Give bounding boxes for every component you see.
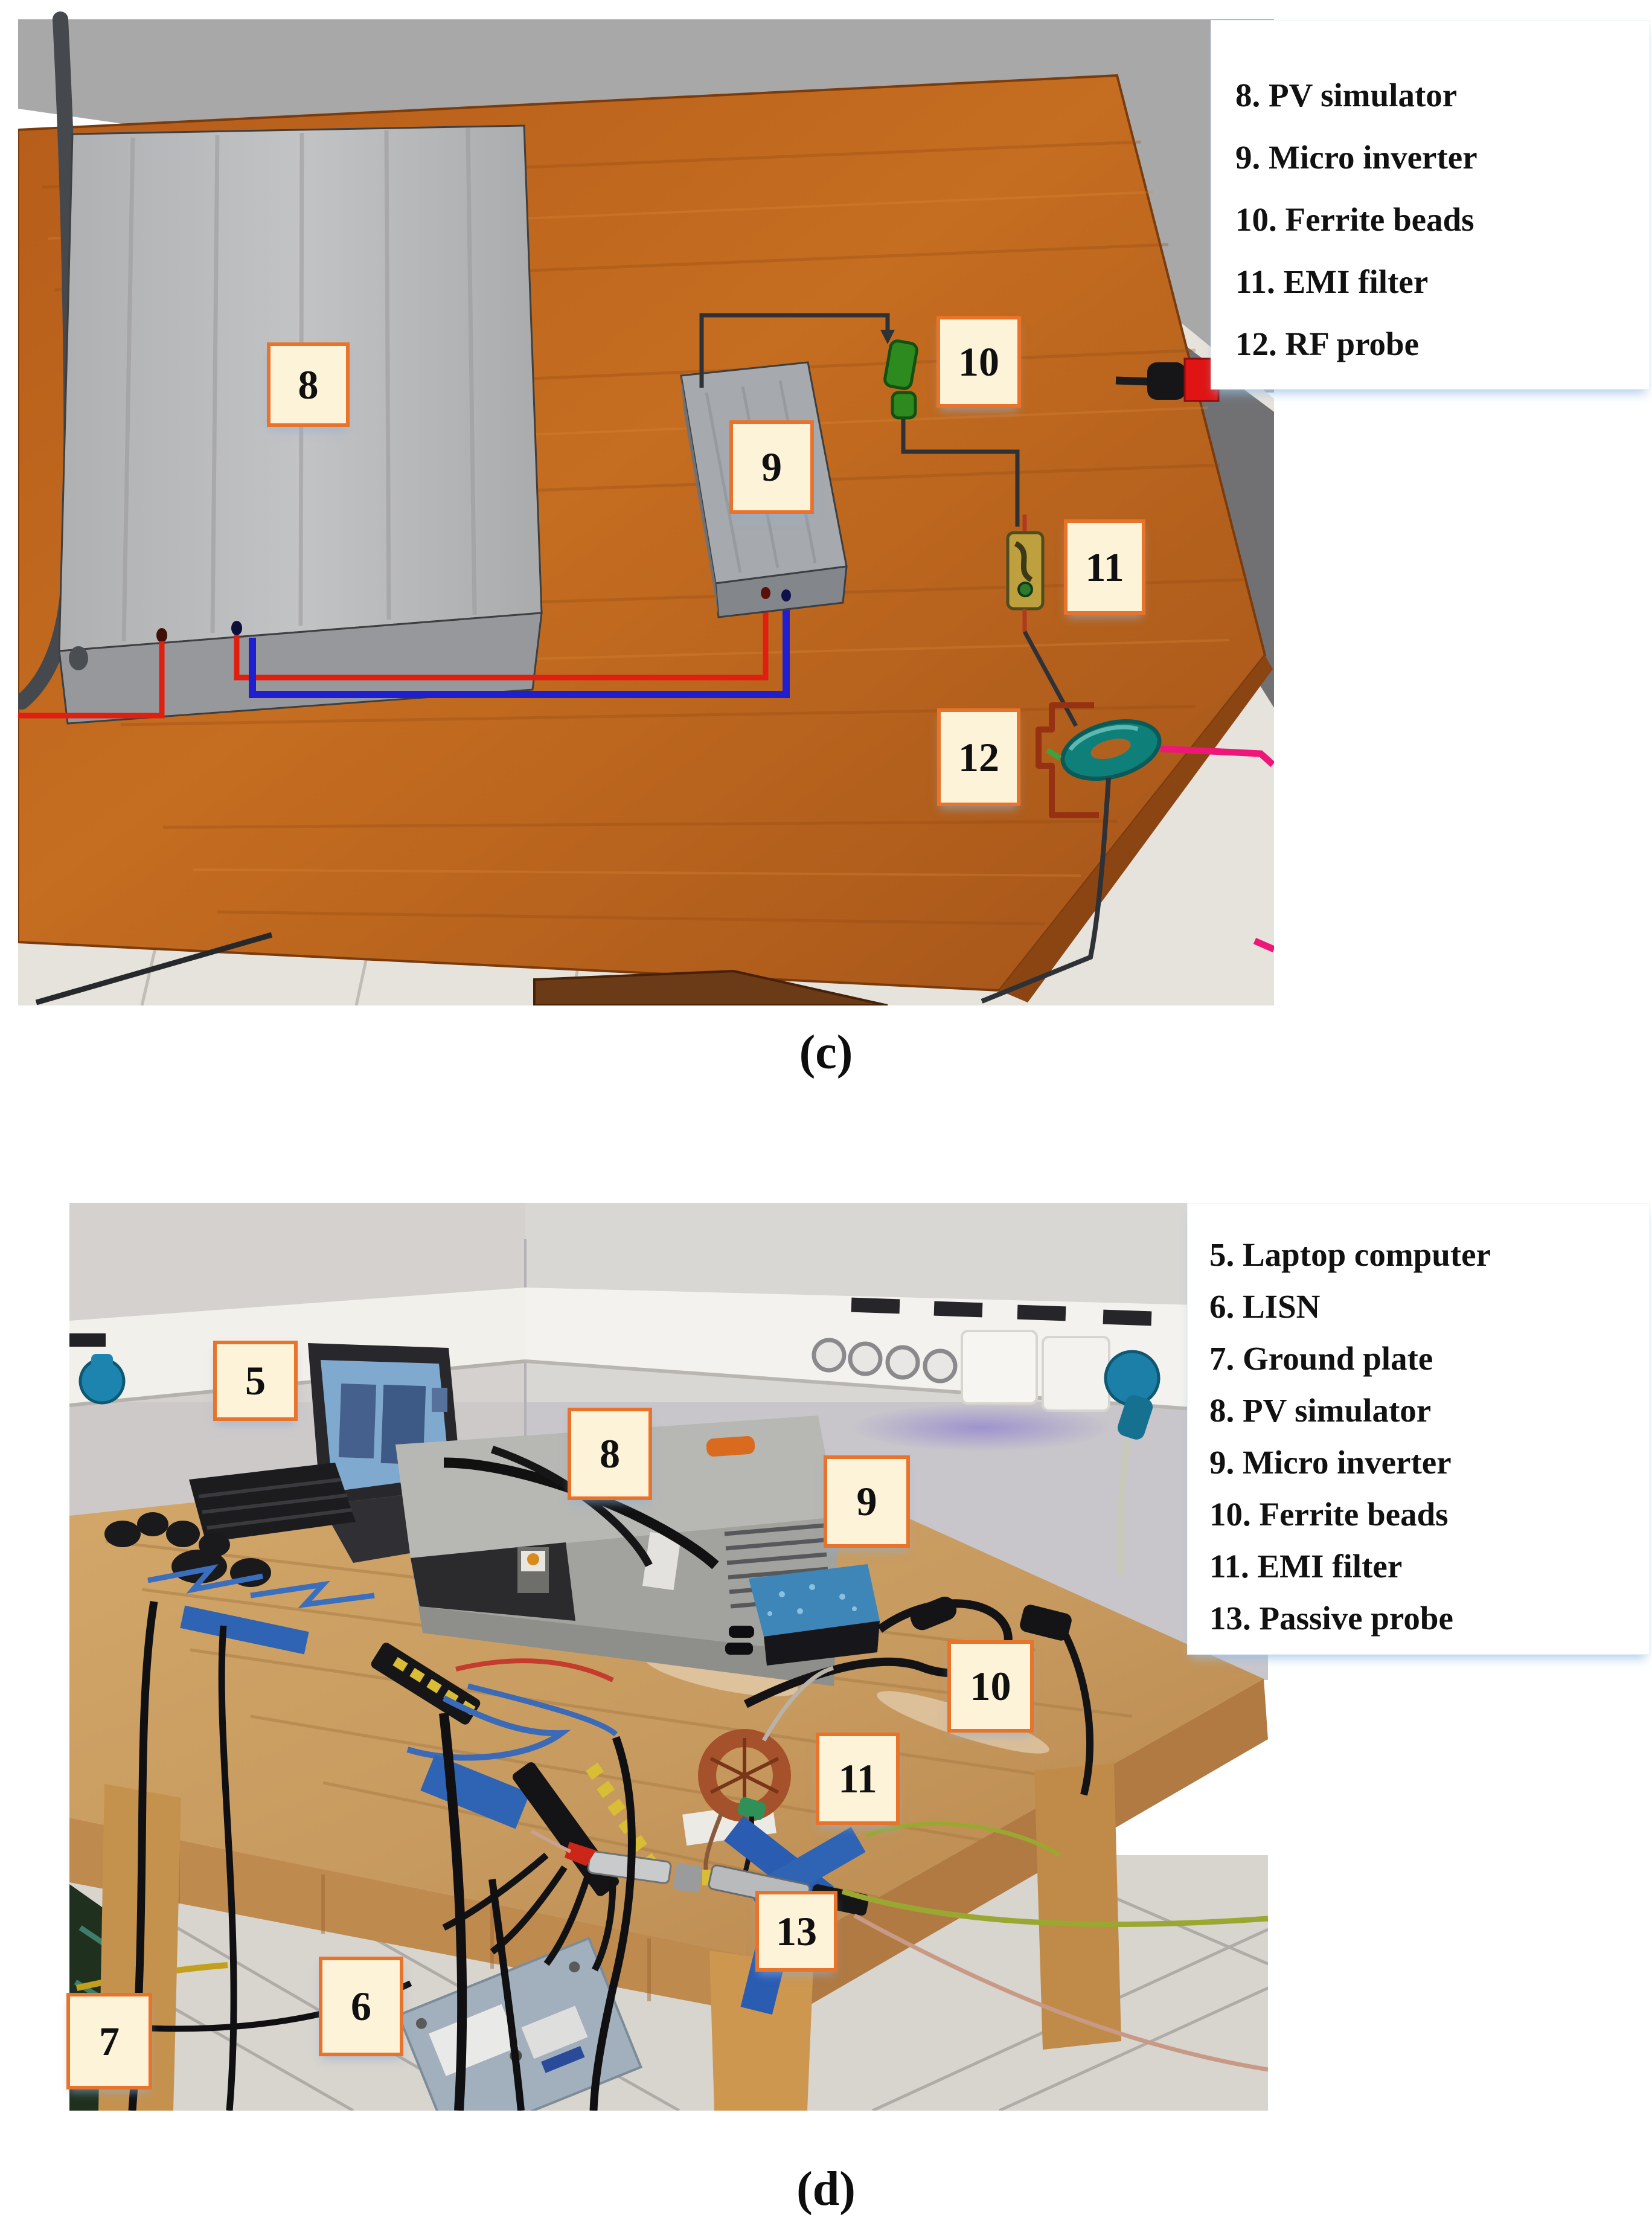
legend-d-item-11: 11. EMI filter xyxy=(1209,1541,1643,1592)
legend-d-item-10: 10. Ferrite beads xyxy=(1209,1489,1643,1541)
legend-figure-c: 8. PV simulator 9. Micro inverter 10. Fe… xyxy=(1211,20,1650,390)
marker-c-11-emi-filter: 11 xyxy=(1064,519,1145,615)
legend-d-item-9: 9. Micro inverter xyxy=(1209,1437,1643,1489)
marker-d-5-laptop: 5 xyxy=(213,1341,298,1421)
legend-c-item-10: 10. Ferrite beads xyxy=(1235,188,1643,251)
marker-d-9-micro-inverter: 9 xyxy=(824,1455,910,1548)
legend-d-item-5: 5. Laptop computer xyxy=(1209,1229,1643,1281)
legend-d-item-8: 8. PV simulator xyxy=(1209,1385,1643,1437)
caption-figure-c: (c) xyxy=(0,1025,1652,1080)
marker-c-12-rf-probe: 12 xyxy=(937,708,1020,806)
legend-d-item-7: 7. Ground plate xyxy=(1209,1333,1643,1385)
marker-c-10-ferrite-beads: 10 xyxy=(936,316,1021,408)
marker-d-10-ferrite-beads: 10 xyxy=(947,1640,1034,1733)
legend-c-item-8: 8. PV simulator xyxy=(1235,64,1643,126)
page: 8 9 10 11 12 8. PV simulator 9. Micro in… xyxy=(0,0,1652,2232)
figure-d-scene xyxy=(69,1203,1268,2111)
caption-figure-d: (d) xyxy=(0,2162,1652,2217)
legend-figure-d: 5. Laptop computer 6. LISN 7. Ground pla… xyxy=(1187,1203,1650,1655)
marker-d-13-passive-probe: 13 xyxy=(755,1891,837,1972)
legend-c-item-11: 11. EMI filter xyxy=(1235,251,1643,313)
marker-c-8-pv-simulator: 8 xyxy=(267,342,350,427)
legend-d-item-13: 13. Passive probe xyxy=(1209,1592,1643,1644)
marker-d-6-lisn: 6 xyxy=(319,1957,403,2056)
marker-d-11-emi-filter: 11 xyxy=(816,1733,900,1825)
legend-c-item-9: 9. Micro inverter xyxy=(1235,126,1643,188)
marker-c-9-micro-inverter: 9 xyxy=(729,420,814,514)
figure-c-scene xyxy=(18,6,1274,1005)
legend-d-item-6: 6. LISN xyxy=(1209,1281,1643,1333)
legend-c-item-12: 12. RF probe xyxy=(1235,313,1643,375)
marker-d-7-ground-plate: 7 xyxy=(66,1993,152,2089)
marker-d-8-pv-simulator: 8 xyxy=(568,1408,652,1500)
